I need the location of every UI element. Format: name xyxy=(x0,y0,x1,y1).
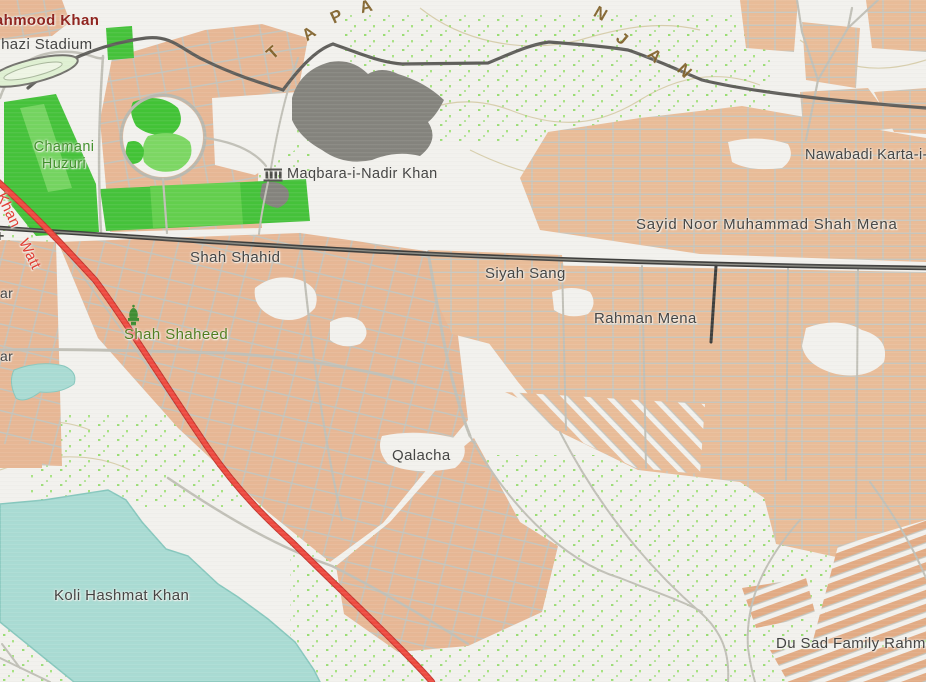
map-artwork xyxy=(0,0,926,682)
mosque-icon xyxy=(126,304,141,326)
map-canvas[interactable]: Mahmood Khan Ghazi Stadium Chamani Huzur… xyxy=(0,0,926,682)
monument-icon xyxy=(263,166,283,182)
